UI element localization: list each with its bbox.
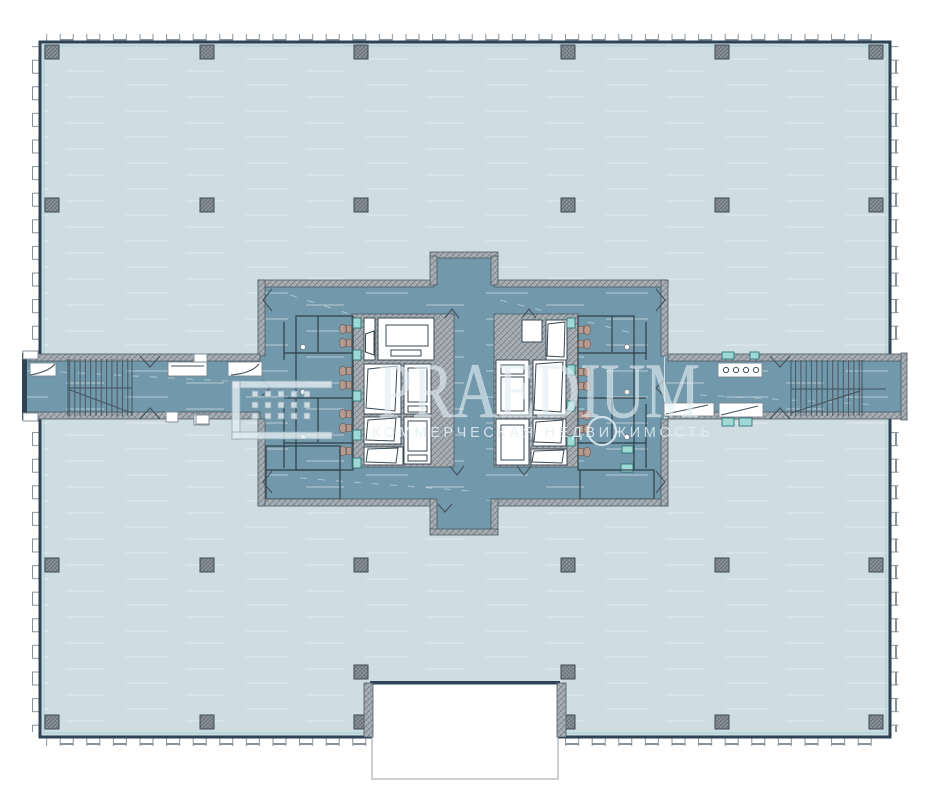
floor-plan: PRAEDIUM КОММЕРЧЕСКАЯ НЕДВИЖИМОСТЬ [0, 0, 951, 800]
shaft-room [522, 320, 542, 342]
toilet-fixture [339, 446, 351, 456]
entrance-void [354, 665, 575, 779]
core-top-vestibule [432, 256, 496, 285]
toilet-fixture [339, 366, 351, 376]
washbasin-counter [718, 363, 762, 377]
watermark-brand-text: PRAEDIUM [378, 347, 700, 434]
east-wing-end-cap [901, 353, 907, 420]
toilet-fixture [339, 380, 351, 390]
toilet-fixture [339, 423, 351, 433]
floor-plan-svg: PRAEDIUM КОММЕРЧЕСКАЯ НЕДВИЖИМОСТЬ [0, 0, 951, 800]
west-wing-end-cap [22, 353, 27, 420]
toilet-fixture [339, 409, 351, 419]
sink-fixture [300, 344, 305, 349]
toilet-fixture [579, 325, 591, 335]
toilet-fixture [579, 447, 591, 457]
duct-shaft [168, 362, 207, 376]
door-panel [228, 362, 262, 376]
toilet-fixture [339, 338, 351, 348]
toilet-fixture [339, 324, 351, 334]
west-stairwell [68, 359, 132, 416]
core-bottom-vestibule [432, 500, 496, 532]
